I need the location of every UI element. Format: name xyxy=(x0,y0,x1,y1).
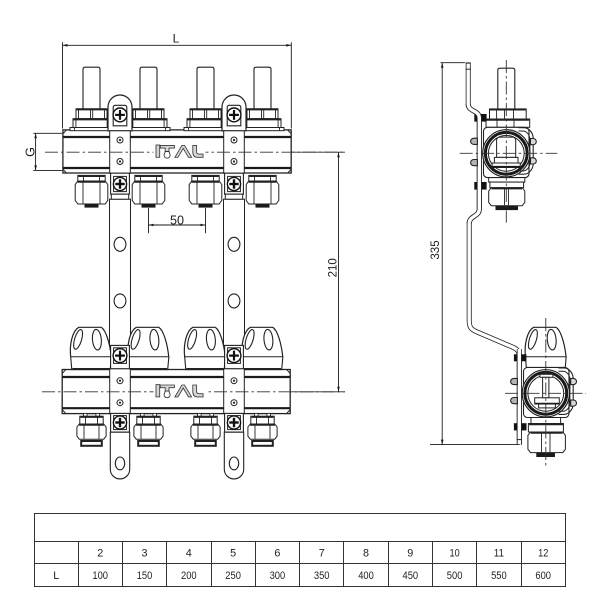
svg-text:8: 8 xyxy=(363,548,369,560)
svg-text:500: 500 xyxy=(447,570,463,582)
svg-text:550: 550 xyxy=(491,570,507,582)
svg-text:2: 2 xyxy=(97,548,103,560)
svg-text:3: 3 xyxy=(141,548,147,560)
svg-text:12: 12 xyxy=(538,548,548,560)
svg-text:G: G xyxy=(24,147,38,157)
svg-text:10: 10 xyxy=(450,548,460,560)
svg-text:450: 450 xyxy=(403,570,419,582)
svg-text:600: 600 xyxy=(535,570,551,582)
svg-text:L: L xyxy=(173,32,180,46)
svg-text:100: 100 xyxy=(92,570,108,582)
svg-text:150: 150 xyxy=(137,570,153,582)
svg-text:50: 50 xyxy=(170,213,184,227)
svg-text:11: 11 xyxy=(494,548,504,560)
svg-text:250: 250 xyxy=(225,570,241,582)
svg-text:9: 9 xyxy=(407,548,413,560)
svg-text:210: 210 xyxy=(328,258,340,277)
svg-text:200: 200 xyxy=(181,570,197,582)
svg-text:6: 6 xyxy=(274,548,280,560)
svg-text:5: 5 xyxy=(230,548,236,560)
svg-text:350: 350 xyxy=(314,570,330,582)
svg-text:300: 300 xyxy=(270,570,286,582)
svg-text:L: L xyxy=(53,570,59,582)
svg-text:7: 7 xyxy=(319,548,325,560)
svg-text:4: 4 xyxy=(186,548,192,560)
svg-text:335: 335 xyxy=(430,240,442,259)
svg-text:400: 400 xyxy=(358,570,374,582)
